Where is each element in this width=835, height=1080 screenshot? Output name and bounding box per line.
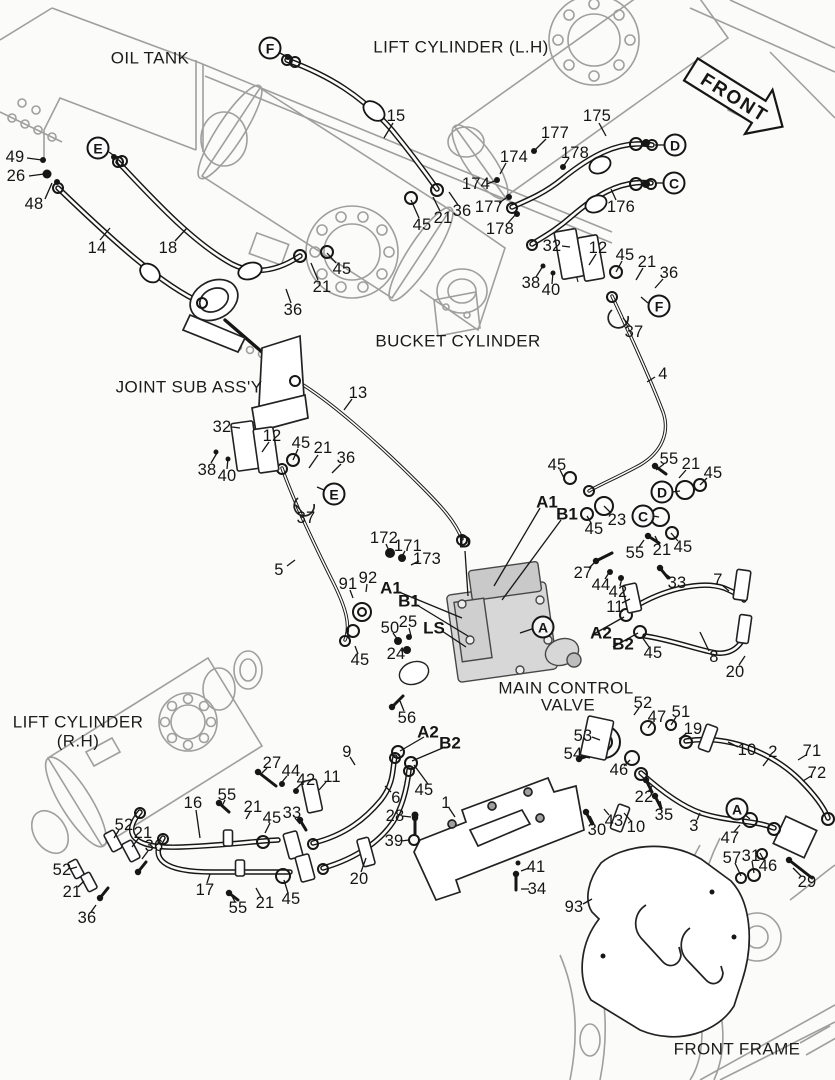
- callout-50: 50: [381, 620, 400, 637]
- connection-letter-f: F: [259, 37, 282, 60]
- component-title: MAIN CONTROL: [498, 680, 633, 697]
- callout-23: 23: [608, 512, 627, 529]
- component-title: LIFT CYLINDER (L.H): [373, 39, 548, 56]
- callout-21: 21: [256, 895, 275, 912]
- callout-30: 30: [588, 822, 607, 839]
- callout-52: 52: [53, 862, 72, 879]
- callout-22: 22: [635, 789, 654, 806]
- callout-45: 45: [704, 465, 723, 482]
- port-label-b2: B2: [439, 735, 461, 752]
- callout-72: 72: [808, 765, 827, 782]
- callout-54: 54: [564, 746, 583, 763]
- callout-27: 27: [263, 755, 282, 772]
- callout-45: 45: [292, 435, 311, 452]
- callout-35: 35: [655, 807, 674, 824]
- callout-37: 37: [297, 510, 316, 527]
- connection-letter-d: D: [664, 134, 687, 157]
- callout-49: 49: [6, 149, 25, 166]
- callout-2: 2: [768, 744, 777, 761]
- callout-25: 25: [399, 614, 418, 631]
- callout-36: 36: [660, 265, 679, 282]
- connection-letter-d: D: [651, 481, 674, 504]
- callout-12: 12: [589, 240, 608, 257]
- callout-45: 45: [413, 217, 432, 234]
- port-label-ls: LS: [423, 620, 445, 637]
- callout-45: 45: [263, 810, 282, 827]
- callout-55: 55: [660, 451, 679, 468]
- callout-26: 26: [7, 168, 26, 185]
- connection-letter-e: E: [323, 483, 346, 506]
- callout-47: 47: [721, 830, 740, 847]
- component-title: OIL TANK: [111, 50, 189, 67]
- callout-21: 21: [244, 799, 263, 816]
- callout-44: 44: [592, 577, 611, 594]
- callout-5: 5: [274, 562, 283, 579]
- callout-71: 71: [803, 743, 822, 760]
- port-label-a2: A2: [590, 625, 612, 642]
- callout-9: 9: [342, 744, 351, 761]
- component-title: FRONT FRAME: [674, 1041, 801, 1058]
- callout-36: 36: [145, 838, 164, 855]
- callout-55: 55: [229, 900, 248, 917]
- callout-42: 42: [297, 772, 316, 789]
- callout-20: 20: [726, 664, 745, 681]
- callout-24: 24: [387, 646, 406, 663]
- port-label-a2: A2: [417, 724, 439, 741]
- callout-17: 17: [196, 882, 215, 899]
- callout-36: 36: [78, 910, 97, 927]
- connection-letter-e: E: [87, 137, 110, 160]
- callout-33: 33: [283, 805, 302, 822]
- callout-11: 11: [323, 769, 341, 786]
- callout-3: 3: [689, 818, 698, 835]
- callout-7: 7: [713, 572, 722, 589]
- callout-45: 45: [351, 652, 370, 669]
- callout-45: 45: [548, 457, 567, 474]
- callout-19: 19: [684, 721, 703, 738]
- callout-56: 56: [398, 710, 417, 727]
- callout-16: 16: [184, 795, 203, 812]
- port-label-b1: B1: [398, 593, 420, 610]
- callout-15: 15: [387, 108, 406, 125]
- callout-6: 6: [391, 790, 400, 807]
- callout-93: 93: [565, 899, 584, 916]
- callout-20: 20: [350, 871, 369, 888]
- callout-39: 39: [385, 833, 404, 850]
- connection-letter-c: C: [663, 172, 686, 195]
- callout-91: 91: [339, 576, 358, 593]
- callout-11: 11: [606, 599, 624, 616]
- callout-27: 27: [574, 565, 593, 582]
- callout-178: 178: [486, 221, 514, 238]
- callout-34: 34: [528, 881, 547, 898]
- callout-36: 36: [453, 203, 472, 220]
- callout-21: 21: [313, 279, 332, 296]
- callout-51: 51: [672, 704, 691, 721]
- callout-53: 53: [574, 728, 593, 745]
- component-title: (R.H): [57, 733, 100, 750]
- callout-40: 40: [218, 468, 237, 485]
- callout-57: 57: [723, 850, 742, 867]
- component-title: JOINT SUB ASS'Y: [116, 379, 263, 396]
- callout-175: 175: [583, 108, 611, 125]
- port-label-d: D: [459, 534, 471, 551]
- callout-45: 45: [616, 247, 635, 264]
- port-label-b2: B2: [612, 636, 634, 653]
- callout-45: 45: [282, 891, 301, 908]
- callout-43: 43: [605, 813, 624, 830]
- callout-52: 52: [115, 817, 134, 834]
- callout-21: 21: [63, 884, 82, 901]
- port-label-b1: B1: [556, 506, 578, 523]
- callout-55: 55: [218, 787, 237, 804]
- callout-38: 38: [522, 275, 541, 292]
- callout-37: 37: [625, 324, 644, 341]
- callout-176: 176: [607, 199, 635, 216]
- callout-14: 14: [88, 240, 107, 257]
- callout-46: 46: [759, 858, 778, 875]
- callout-21: 21: [434, 210, 453, 227]
- callout-28: 28: [386, 808, 405, 825]
- connection-letter-a: A: [532, 616, 555, 639]
- callout-46: 46: [610, 762, 629, 779]
- callout-10: 10: [738, 742, 757, 759]
- callout-40: 40: [542, 282, 561, 299]
- callout-45: 45: [674, 539, 693, 556]
- callout-21: 21: [653, 542, 672, 559]
- callout-178: 178: [561, 145, 589, 162]
- callout-31: 31: [742, 848, 761, 865]
- callout-36: 36: [284, 302, 303, 319]
- callout-92: 92: [359, 570, 378, 587]
- callout-33: 33: [668, 575, 687, 592]
- callout-8: 8: [709, 649, 718, 666]
- port-label-a1: A1: [536, 494, 558, 511]
- callout-38: 38: [198, 462, 217, 479]
- callout-48: 48: [25, 196, 44, 213]
- callout-21: 21: [682, 456, 701, 473]
- callout-21: 21: [314, 440, 333, 457]
- hydraulic-piping-parts-diagram: FRONT 4926481418154521361741771751781741…: [0, 0, 835, 1080]
- callout-45: 45: [415, 782, 434, 799]
- callout-36: 36: [337, 450, 356, 467]
- callout-labels-layer: 4926481418154521361741771751781741771781…: [0, 0, 835, 1080]
- component-title: BUCKET CYLINDER: [375, 333, 540, 350]
- connection-letter-f: F: [648, 295, 671, 318]
- callout-29: 29: [798, 874, 817, 891]
- callout-177: 177: [541, 125, 569, 142]
- callout-13: 13: [349, 385, 368, 402]
- connection-letter-a: A: [726, 798, 749, 821]
- callout-18: 18: [159, 240, 178, 257]
- callout-173: 173: [413, 551, 441, 568]
- component-title: VALVE: [541, 697, 595, 714]
- connection-letter-c: C: [632, 505, 655, 528]
- callout-1: 1: [441, 795, 450, 812]
- callout-55: 55: [626, 545, 645, 562]
- component-title: LIFT CYLINDER: [13, 714, 144, 731]
- callout-174: 174: [500, 149, 528, 166]
- callout-4: 4: [658, 366, 667, 383]
- callout-10: 10: [627, 819, 646, 836]
- callout-45: 45: [333, 261, 352, 278]
- callout-47: 47: [648, 709, 667, 726]
- callout-174: 174: [462, 176, 490, 193]
- callout-41: 41: [527, 859, 546, 876]
- callout-21: 21: [638, 254, 657, 271]
- callout-32: 32: [213, 419, 232, 436]
- callout-45: 45: [644, 645, 663, 662]
- callout-12: 12: [263, 428, 282, 445]
- callout-32: 32: [543, 238, 562, 255]
- callout-177: 177: [475, 199, 503, 216]
- callout-45: 45: [585, 521, 604, 538]
